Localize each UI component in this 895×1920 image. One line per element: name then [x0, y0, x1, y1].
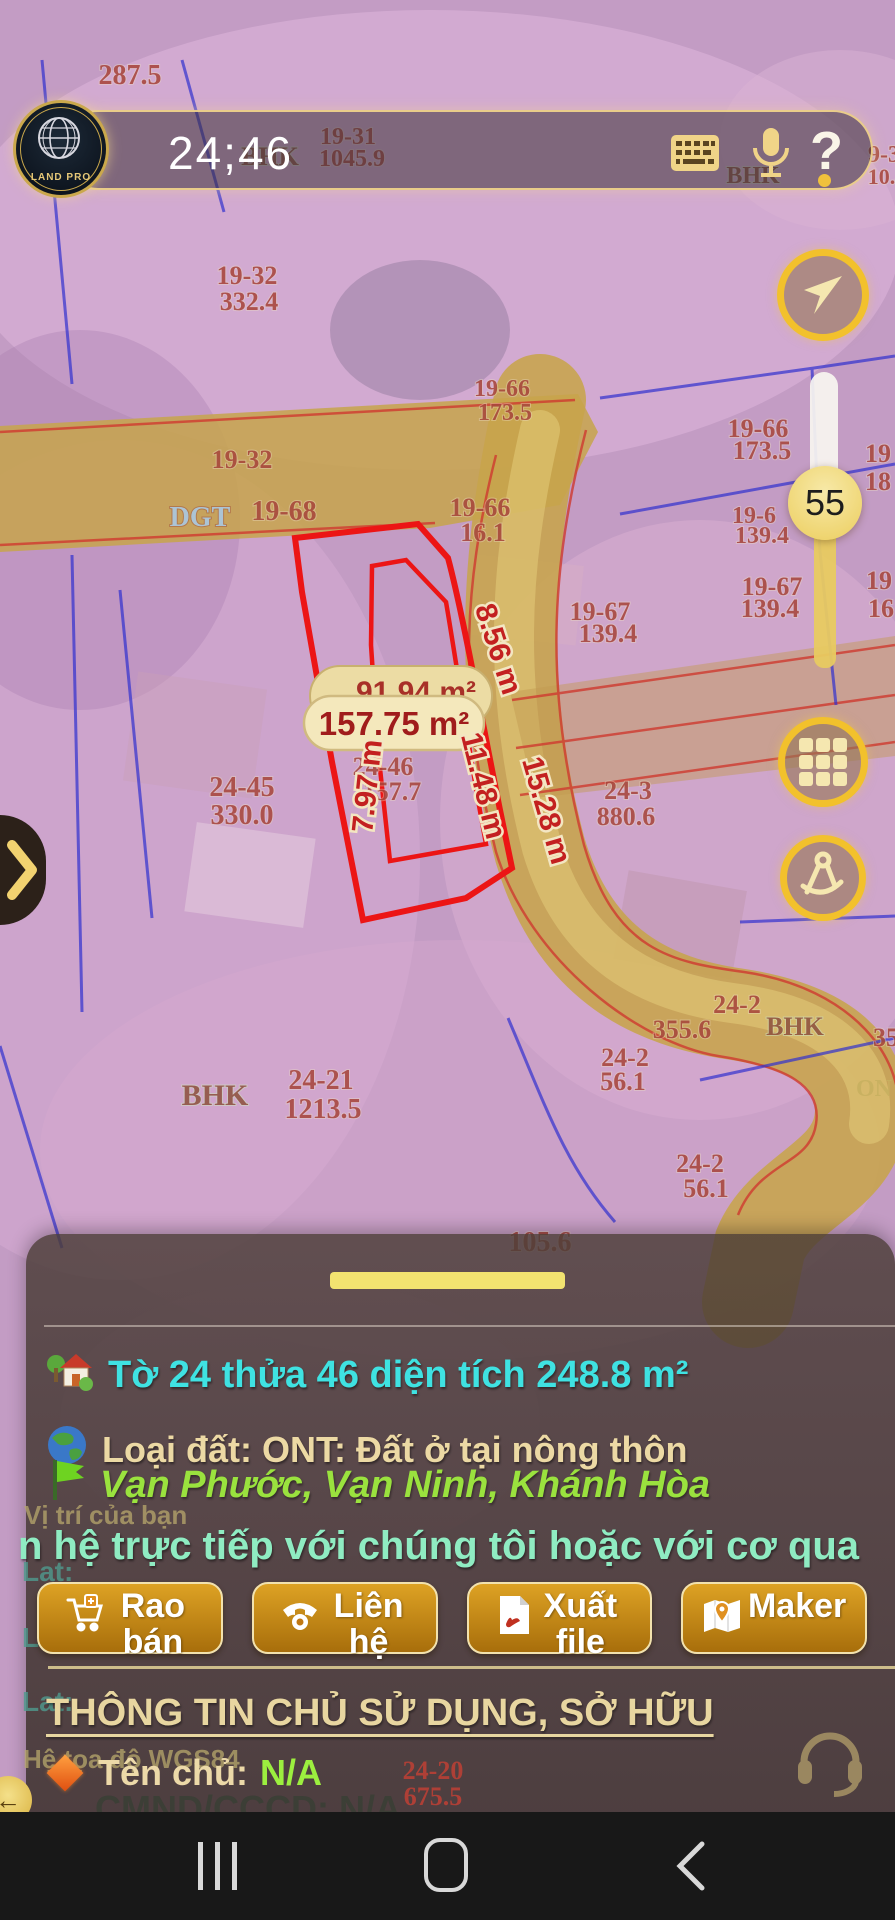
sheet-divider	[44, 1325, 895, 1327]
map-label: BHK	[182, 1079, 249, 1112]
grid-icon	[785, 724, 861, 800]
map-label: BHK	[766, 1012, 825, 1041]
phone-icon	[279, 1594, 321, 1639]
diamond-bullet-icon	[47, 1755, 84, 1792]
map-label: 24-2	[713, 990, 761, 1019]
pdf-file-icon	[496, 1594, 532, 1641]
support-headset-icon[interactable]	[790, 1718, 870, 1807]
map-label: 35	[873, 1023, 895, 1052]
map-label: 880.6	[597, 802, 656, 831]
navigation-arrow-icon	[784, 256, 862, 334]
map-label: 19	[865, 439, 891, 468]
map-label: 332.4	[220, 287, 279, 316]
map-label: 16.1	[460, 518, 506, 547]
area-value-front: 157.75 m²	[319, 705, 469, 742]
map-label: 173.5	[478, 400, 532, 426]
parcel-title: Tờ 24 thửa 46 diện tích 248.8 m²	[108, 1354, 688, 1397]
sell-button-label: Rao bán	[111, 1588, 195, 1660]
address-row: Vạn Phước, Vạn Ninh, Khánh Hòa	[50, 1458, 710, 1512]
export-file-button[interactable]: Xuất file	[467, 1582, 653, 1654]
address-text: Vạn Phước, Vạn Ninh, Khánh Hòa	[100, 1464, 710, 1507]
map-label: 19-32	[212, 445, 273, 474]
zoom-slider-thumb[interactable]: 55	[788, 466, 862, 540]
map-label: 19-68	[251, 496, 316, 527]
back-chevron-icon	[672, 1840, 708, 1892]
parcel-title-row: Tờ 24 thửa 46 diện tích 248.8 m²	[46, 1348, 688, 1402]
expand-panel-tab[interactable]	[0, 815, 46, 925]
map-label: 330.0	[211, 800, 274, 831]
marker-button-label: Maker	[748, 1588, 846, 1624]
chevron-right-icon	[0, 815, 46, 925]
map-label: 24-3	[604, 776, 652, 805]
landpro-logo[interactable]: LAND PRO	[13, 100, 109, 198]
microphone-icon[interactable]	[750, 126, 792, 183]
help-icon[interactable]: ?	[810, 120, 843, 182]
zoom-slider-track[interactable]	[810, 372, 838, 472]
measure-tool-button[interactable]	[780, 835, 866, 921]
map-label: 173.5	[733, 436, 792, 465]
map-label: 10.4	[868, 164, 895, 189]
map-label: ON	[856, 1076, 893, 1102]
owner-section-heading: THÔNG TIN CHỦ SỬ DỤNG, SỞ HỮU	[46, 1692, 714, 1735]
map-label: DGT	[170, 502, 231, 533]
map-label: 56.1	[600, 1067, 646, 1096]
map-label: 355.6	[653, 1015, 712, 1044]
layers-grid-button[interactable]	[778, 717, 868, 807]
sheet-drag-handle[interactable]	[330, 1272, 565, 1289]
help-icon-dot	[818, 174, 831, 187]
house-icon	[46, 1348, 94, 1402]
map-label: 24-21	[288, 1065, 353, 1096]
zoom-slider-track-filled[interactable]	[814, 538, 836, 668]
owner-name-label: Tên chủ:	[98, 1752, 248, 1794]
section-divider-line	[48, 1666, 895, 1669]
my-location-button[interactable]	[777, 249, 869, 341]
map-label: 16	[868, 594, 894, 623]
map-label: 139.4	[579, 619, 638, 648]
map-label: 19-66	[474, 376, 530, 402]
android-navbar	[0, 1812, 895, 1920]
back-button[interactable]	[672, 1840, 708, 1897]
logo-brand-text: LAND PRO	[16, 172, 106, 183]
zoom-level-value: 55	[805, 482, 845, 524]
action-button-row: Rao bán Liên hệ Xuất file	[37, 1582, 867, 1654]
map-label: 19	[866, 566, 892, 595]
top-bar: 24;46 ?	[58, 110, 873, 190]
recents-button[interactable]	[198, 1842, 237, 1890]
owner-name-value: N/A	[260, 1752, 322, 1794]
map-pin-icon	[702, 1594, 742, 1641]
cart-plus-icon	[65, 1594, 105, 1639]
notice-marquee: n hệ trực tiếp với chúng tôi hoặc với cơ…	[0, 1524, 895, 1572]
notice-marquee-text: n hệ trực tiếp với chúng tôi hoặc với cơ…	[18, 1524, 859, 1569]
map-label: 1213.5	[285, 1094, 362, 1125]
app-screen: 287.5 BHK 19-31 1045.9 BHK 9-3 10.4 19-3…	[0, 0, 895, 1920]
compass-icon	[787, 842, 859, 914]
session-timer: 24;46	[168, 126, 293, 180]
home-button[interactable]	[424, 1838, 468, 1892]
map-label: 139.4	[735, 523, 789, 549]
marker-button[interactable]: Maker	[681, 1582, 867, 1654]
contact-button-label: Liên hệ	[327, 1588, 411, 1660]
map-label: 139.4	[741, 594, 800, 623]
underlay-parcel-label: 24-20 675.5	[388, 1758, 478, 1810]
map-label: 19-32	[217, 261, 278, 290]
map-label: 287.5	[99, 60, 162, 91]
sell-button[interactable]: Rao bán	[37, 1582, 223, 1654]
flag-icon	[50, 1458, 86, 1512]
owner-name-row: Tên chủ: N/A	[52, 1752, 322, 1794]
map-label: 24-45	[209, 772, 274, 803]
keyboard-icon[interactable]	[670, 134, 720, 177]
contact-button[interactable]: Liên hệ	[252, 1582, 438, 1654]
map-label: 56.1	[683, 1174, 729, 1203]
globe-icon	[36, 115, 82, 161]
map-label: 18	[865, 467, 891, 496]
export-file-button-label: Xuất file	[538, 1588, 622, 1660]
